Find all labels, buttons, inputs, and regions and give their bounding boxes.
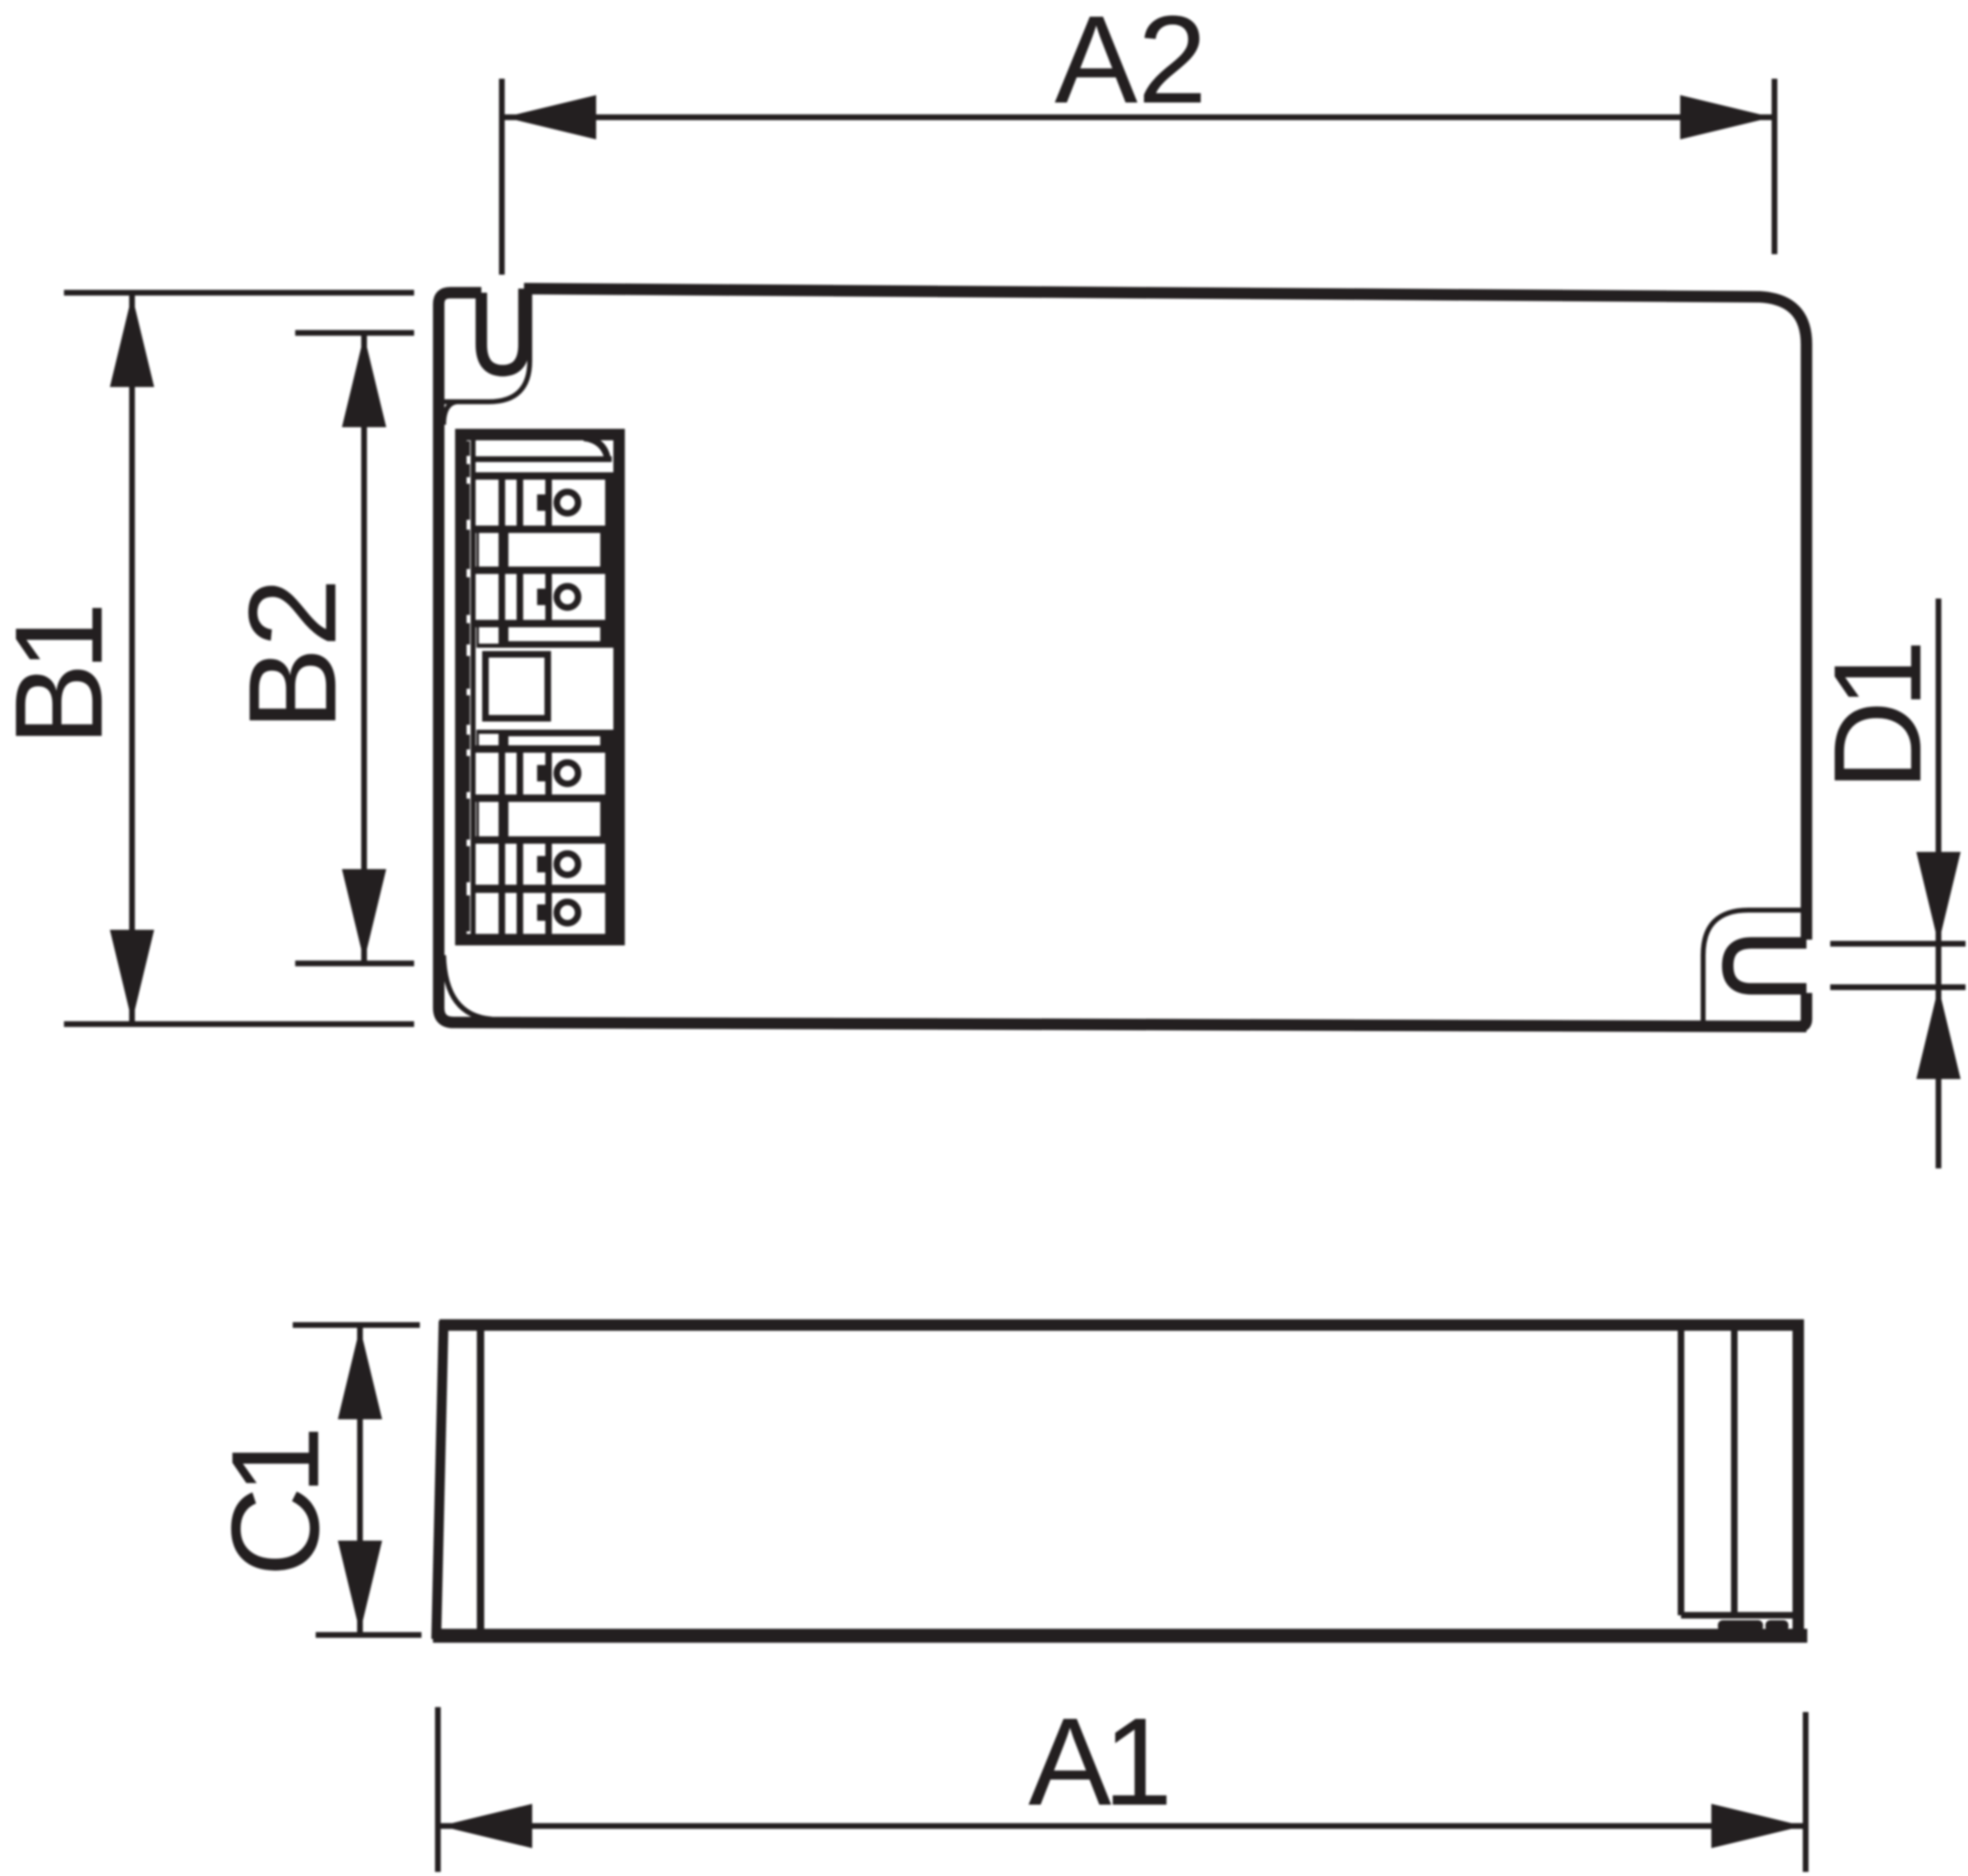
svg-text:A2: A2 [1055,0,1207,130]
svg-text:B2: B2 [223,578,362,731]
svg-text:B1: B1 [0,602,129,746]
svg-text:D1: D1 [1808,640,1947,790]
svg-text:C1: C1 [206,1426,345,1577]
svg-text:A1: A1 [1028,1692,1173,1832]
